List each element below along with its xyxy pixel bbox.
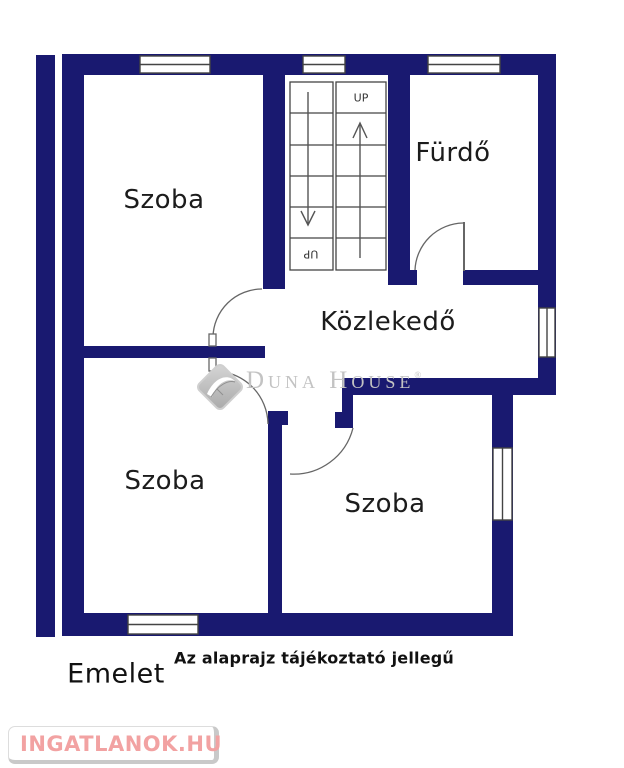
- door-arc: [415, 223, 463, 270]
- dunahouse-diamond-icon: [196, 363, 244, 411]
- door-arc: [290, 428, 353, 474]
- wall-segment: [36, 55, 55, 637]
- room-label-kozlekedo: Közlekedő: [320, 307, 456, 337]
- disclaimer-text: Az alaprajz tájékoztató jellegű: [174, 649, 454, 668]
- window: [539, 308, 555, 357]
- wall-segment: [342, 395, 353, 414]
- wall-segment: [335, 412, 353, 428]
- stairs-up-label: UP: [354, 92, 369, 105]
- wall-segment: [268, 424, 282, 636]
- room-label-szoba-bottom-left: Szoba: [125, 466, 206, 496]
- wall-segment: [388, 75, 410, 285]
- ingatlanok-logo: INGATLANOK.HU: [8, 726, 219, 764]
- wall-segment: [62, 346, 265, 358]
- window: [493, 448, 512, 520]
- staircase: [290, 82, 386, 270]
- window: [303, 56, 345, 73]
- dunahouse-watermark: Duna House®: [246, 368, 421, 393]
- window: [140, 56, 210, 73]
- room-label-furdo: Fürdő: [415, 138, 490, 168]
- dunahouse-brand-text: Duna House: [246, 367, 414, 394]
- door-leaf: [209, 334, 216, 346]
- ingatlanok-logo-text: INGATLANOK.HU: [20, 732, 222, 756]
- wall-segment: [268, 411, 288, 425]
- window: [128, 615, 198, 634]
- wall-segment: [62, 54, 84, 635]
- floorplan-image: Szoba Fürdő Közlekedő Szoba Szoba UP UP …: [0, 0, 624, 768]
- window: [428, 56, 500, 73]
- stairs-down-flight-label: UP: [304, 248, 319, 261]
- floor-title: Emelet: [67, 659, 165, 690]
- room-label-szoba-top-left: Szoba: [124, 185, 205, 215]
- room-label-szoba-bottom-right: Szoba: [345, 489, 426, 519]
- wall-segment: [388, 270, 417, 285]
- door-arc: [213, 289, 262, 337]
- wall-segment: [263, 75, 285, 289]
- registered-trademark-symbol: ®: [414, 370, 421, 380]
- wall-segment: [463, 270, 538, 285]
